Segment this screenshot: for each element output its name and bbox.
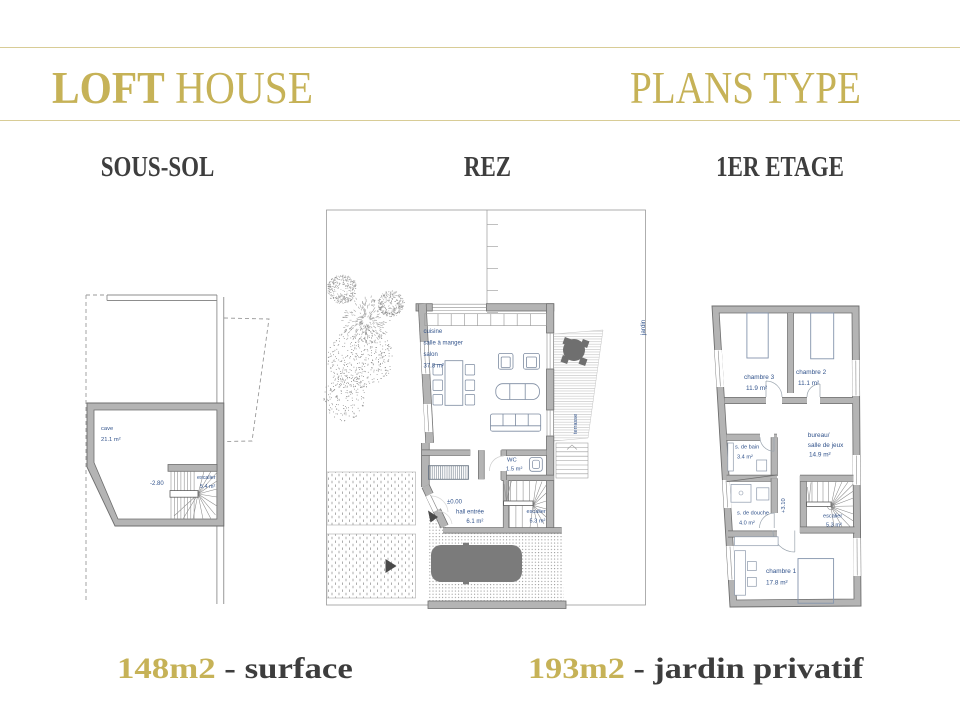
svg-text:escalier: escalier — [527, 509, 546, 515]
svg-text:bureau/: bureau/ — [808, 432, 830, 439]
svg-text:-2.80: -2.80 — [150, 481, 164, 487]
svg-text:4.0 m²: 4.0 m² — [739, 521, 755, 527]
svg-text:salle à manger: salle à manger — [424, 341, 463, 347]
svg-text:1.5 m²: 1.5 m² — [506, 467, 522, 473]
svg-text:5.3 m²: 5.3 m² — [530, 519, 546, 525]
svg-text:salle de jeux: salle de jeux — [808, 442, 844, 449]
svg-text:s. de bain: s. de bain — [735, 445, 759, 451]
svg-text:cave: cave — [101, 426, 113, 432]
svg-text:17.8 m²: 17.8 m² — [766, 580, 788, 587]
svg-text:jardin: jardin — [640, 319, 647, 336]
svg-text:chambre 3: chambre 3 — [744, 374, 775, 381]
svg-text:chambre 1: chambre 1 — [766, 568, 797, 575]
svg-text:salon: salon — [424, 352, 438, 358]
svg-text:s. de douche: s. de douche — [737, 511, 769, 517]
svg-text:terrasse: terrasse — [573, 414, 579, 434]
svg-text:WC: WC — [507, 458, 517, 464]
svg-text:cuisine: cuisine — [424, 329, 443, 335]
svg-text:chambre 2: chambre 2 — [796, 369, 827, 376]
svg-text:37.8 m²: 37.8 m² — [424, 364, 444, 370]
svg-text:5.4 m²: 5.4 m² — [200, 484, 215, 490]
svg-text:14.9 m²: 14.9 m² — [809, 452, 831, 459]
svg-text:+3.10: +3.10 — [781, 498, 787, 513]
svg-text:escalier: escalier — [823, 514, 842, 520]
svg-text:21.1 m²: 21.1 m² — [101, 437, 121, 443]
svg-text:11.1 m²: 11.1 m² — [798, 380, 819, 387]
svg-text:6.1 m²: 6.1 m² — [466, 519, 483, 525]
svg-text:5.3 m²: 5.3 m² — [826, 523, 842, 529]
svg-text:±0.00: ±0.00 — [447, 500, 463, 506]
svg-text:hall entrée: hall entrée — [456, 510, 485, 516]
svg-text:escalier: escalier — [197, 475, 216, 481]
svg-text:11.9 m²: 11.9 m² — [746, 385, 767, 392]
svg-text:3.4 m²: 3.4 m² — [737, 455, 753, 461]
